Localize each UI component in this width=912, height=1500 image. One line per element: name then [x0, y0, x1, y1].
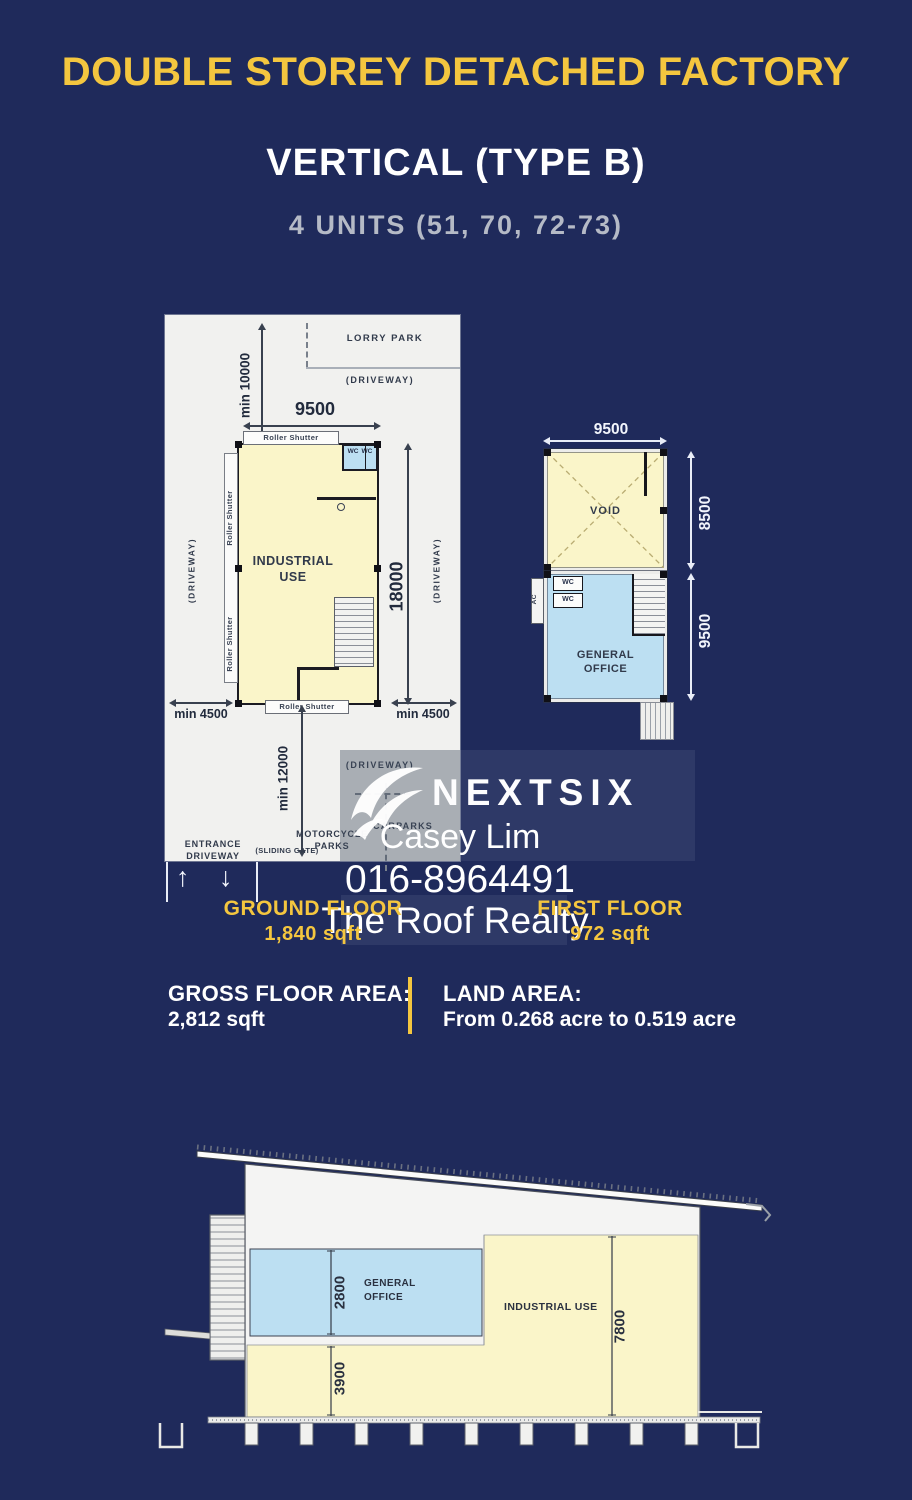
dim-min-4500-right: min 4500: [385, 707, 461, 721]
interior-wall-l2: [297, 667, 300, 700]
gfa-value: 2,812 sqft: [168, 1008, 265, 1032]
roller-shutter-left-upper: Roller Shutter: [224, 483, 236, 553]
column-block: [235, 565, 242, 572]
section-drawing: [150, 1140, 772, 1460]
ff-wc-2: WC: [553, 593, 583, 608]
industrial-use-label: INDUSTRIAL USE: [243, 553, 343, 586]
wc-label-1: WC: [348, 448, 359, 455]
roller-shutter-top: Roller Shutter: [243, 431, 339, 445]
column-block: [544, 571, 551, 578]
ac-label: AC: [531, 569, 539, 629]
interior-wall-l1: [297, 667, 339, 670]
section-dim-3900: 3900: [332, 1339, 349, 1419]
wc-divider: [365, 445, 367, 470]
summary-divider: [408, 977, 412, 1034]
dim-18000: 18000: [387, 547, 408, 627]
ff-dim-line-8500: [690, 453, 692, 568]
ff-wc-1: WC: [553, 576, 583, 591]
ground-floor-label: GROUND FLOOR: [203, 897, 423, 921]
dim-line-9500: [245, 425, 379, 427]
dim-min-12000: min 12000: [276, 734, 291, 824]
column-block: [235, 441, 242, 448]
driveway-top-label: (DRIVEWAY): [310, 375, 450, 387]
stairs-ground: [334, 597, 374, 667]
column-block: [544, 449, 551, 456]
units-line: 4 UNITS (51, 70, 72-73): [0, 210, 912, 241]
column-block: [544, 564, 551, 571]
page-title: DOUBLE STOREY DETACHED FACTORY: [0, 50, 912, 95]
wc-label-2: WC: [362, 448, 373, 455]
watermark-agent: Casey Lim: [260, 818, 660, 857]
void-room: VOID: [544, 449, 667, 571]
symbol-circle: [337, 503, 345, 511]
general-office-room: WC WC AC GENERAL OFFICE: [544, 571, 667, 702]
watermark-brand: NEXTSIX: [432, 772, 639, 814]
column-block: [660, 449, 667, 456]
roller-shutter-bottom: Roller Shutter: [265, 700, 349, 714]
arrow-up-icon: ↑: [176, 862, 190, 893]
lorry-park-boundary-dash: [306, 323, 308, 367]
column-block: [374, 700, 381, 707]
land-area-value: From 0.268 acre to 0.519 acre: [443, 1008, 736, 1032]
ff-dim-line-9500-right: [690, 575, 692, 699]
section-dim-2800: 2800: [332, 1253, 349, 1333]
section-industrial-use-label: INDUSTRIAL USE: [504, 1301, 624, 1313]
external-stair: [640, 702, 674, 740]
entry-divider-left: [166, 862, 168, 902]
dim-9500: 9500: [265, 399, 365, 420]
section-general-office-label: GENERAL OFFICE: [364, 1277, 454, 1305]
column-block: [660, 571, 667, 578]
section-dim-7800: 7800: [612, 1287, 629, 1367]
column-block: [374, 441, 381, 448]
first-floor-area: 972 sqft: [500, 923, 720, 946]
ff-dim-line-9500-top: [545, 440, 665, 442]
wc-room: WC WC: [342, 444, 378, 471]
entry-divider-right: [256, 862, 258, 902]
driveway-left-label: (DRIVEWAY): [186, 531, 197, 611]
first-floor-label: FIRST FLOOR: [500, 897, 720, 921]
roller-shutter-left-lower: Roller Shutter: [224, 609, 236, 679]
type-subtitle: VERTICAL (TYPE B): [0, 142, 912, 185]
dim-line-min-10000: [261, 325, 263, 441]
void-interior-wall: [644, 452, 647, 496]
factory-building: Roller Shutter Roller Shutter Roller Shu…: [237, 443, 379, 705]
stairwell-first-floor: [632, 574, 665, 636]
watermark-phone: 016-8964491: [260, 858, 660, 902]
lorry-park-boundary-line: [306, 367, 460, 369]
general-office-label: GENERAL OFFICE: [547, 648, 664, 677]
land-area-label: LAND AREA:: [443, 981, 582, 1007]
dim-min-10000: min 10000: [238, 341, 253, 431]
arrow-down-icon: ↓: [219, 862, 233, 893]
void-label: VOID: [547, 504, 664, 518]
flyer-page: DOUBLE STOREY DETACHED FACTORY VERTICAL …: [0, 0, 912, 1500]
driveway-right-label: (DRIVEWAY): [431, 531, 442, 611]
ff-dim-9500-top: 9500: [566, 421, 656, 439]
dim-line-4500-left: [171, 702, 231, 704]
column-block: [374, 565, 381, 572]
ff-dim-9500-right: 9500: [697, 591, 715, 671]
gfa-label: GROSS FLOOR AREA:: [168, 981, 411, 1007]
ff-dim-8500: 8500: [697, 473, 715, 553]
interior-wall: [317, 497, 376, 500]
column-block: [660, 507, 667, 514]
column-block: [660, 695, 667, 702]
dim-line-4500-right: [393, 702, 455, 704]
lorry-park-label: LORRY PARK: [315, 333, 455, 345]
column-block: [544, 695, 551, 702]
ground-floor-area: 1,840 sqft: [203, 923, 423, 946]
dim-min-4500-left: min 4500: [165, 707, 237, 721]
